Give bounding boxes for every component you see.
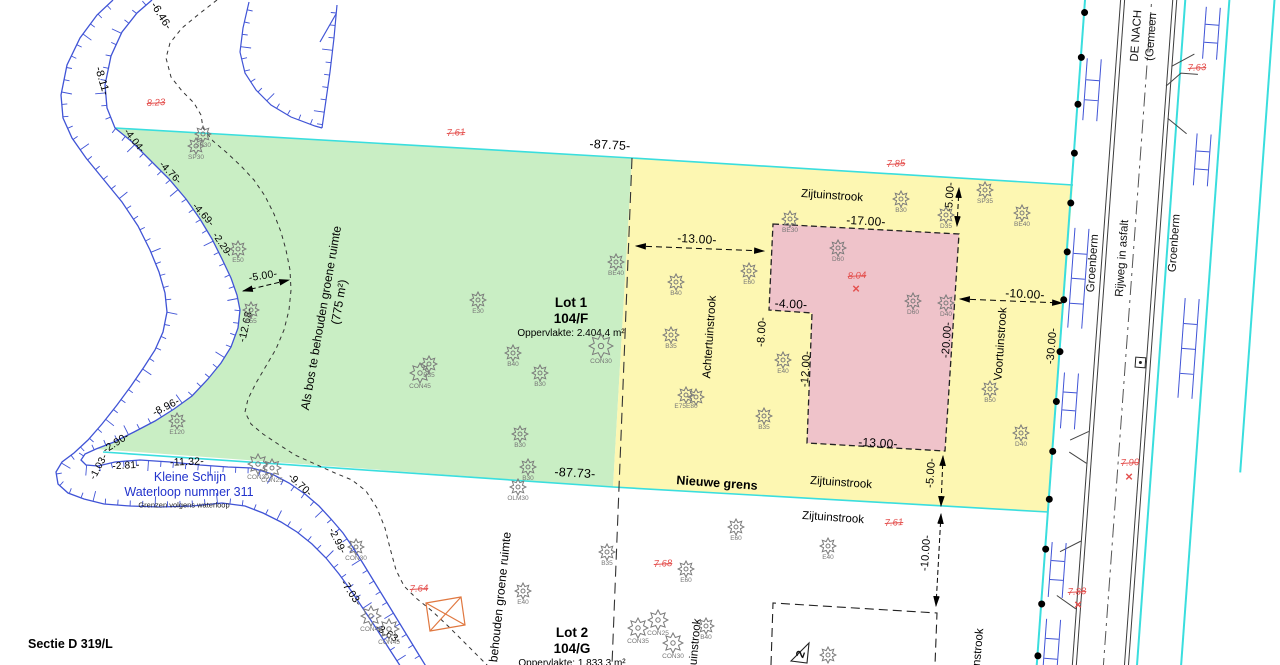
tree-label: E60 <box>743 279 755 286</box>
tree-label: BE40 <box>608 270 624 277</box>
tree-label: E60 <box>680 577 692 584</box>
survey-point-dot <box>1052 397 1059 404</box>
dimension-label: -20.00- <box>940 321 955 358</box>
survey-point-dot <box>1037 600 1044 607</box>
cadastral-survey-plan: 2 Kleine Schijn Waterloop nummer 311 Gre… <box>0 0 1280 665</box>
culvert-rung <box>1074 253 1087 255</box>
dimension-label: -13.00- <box>677 231 717 247</box>
ditch-branch-west <box>240 2 322 128</box>
dimension-label: -10.00- <box>1005 286 1045 302</box>
dimension-label: -4.00- <box>774 296 807 312</box>
tree-label: E40 <box>777 368 789 375</box>
tree-label: SP35 <box>977 198 993 205</box>
culvert-rung <box>1184 323 1197 325</box>
culvert-rung <box>1085 100 1098 102</box>
spot-height: 7.68 <box>653 558 672 570</box>
tree-label: B30 <box>534 381 546 388</box>
survey-point-dot <box>1041 545 1048 552</box>
waterway-name-line1: Kleine Schijn <box>154 470 226 484</box>
tree-symbol <box>687 388 705 411</box>
lot2-area: Oppervlakte: 1.833,3 m² <box>518 657 625 665</box>
tree-label: E30 <box>472 308 484 315</box>
culvert-rung <box>1195 168 1208 170</box>
street-name-label: DE NACH (Gemeen <box>1128 10 1162 64</box>
tree-label: E40 <box>822 554 834 561</box>
culvert-rung <box>1182 348 1195 350</box>
tree-label: CON35 <box>627 638 649 645</box>
spot-height: 7.61 <box>884 517 903 529</box>
spot-height: 7.61 <box>446 127 465 139</box>
dimension-label: -17.00- <box>846 213 886 229</box>
tree-label: D60 <box>832 256 844 263</box>
survey-point-dot <box>1067 199 1074 206</box>
culvert-rung <box>1062 410 1075 412</box>
tree-label: B40 <box>670 290 682 297</box>
survey-point-dot <box>1049 447 1056 454</box>
survey-point-dot <box>1080 8 1087 15</box>
tree-label: B30 <box>895 207 907 214</box>
tree-label: D40 <box>940 311 952 318</box>
lot1-parcel: 104/F <box>517 311 624 327</box>
lot2-name: Lot 2 <box>518 625 625 641</box>
spot-height: 7.64 <box>409 583 428 595</box>
culvert-rung <box>1046 638 1059 640</box>
tree-label: OLM30 <box>507 495 528 502</box>
tree-label: E50 <box>232 257 244 264</box>
dimension-label: -5.00- <box>924 458 938 489</box>
manhole-symbol <box>1135 357 1147 369</box>
road-detail-lines <box>969 0 1280 665</box>
waterway-name-line2: Waterloop nummer 311 <box>124 485 253 499</box>
spot-height: 8.23 <box>146 97 165 109</box>
culvert-rung <box>1070 303 1083 305</box>
spot-height: 7.85 <box>886 158 905 170</box>
tree-label: B50 <box>984 397 996 404</box>
tree-label: CON45 <box>378 639 400 646</box>
dimension-label: -87.73- <box>554 465 596 481</box>
crossed-structure-symbol <box>426 597 465 631</box>
dimension-label: -87.75- <box>589 137 631 153</box>
lot2-label-block: Lot 2 104/G Oppervlakte: 1.833,3 m² <box>518 625 625 665</box>
tree-label: BE30 <box>782 227 798 234</box>
spot-height: 7.63 <box>1187 62 1206 74</box>
tree-label: B40 <box>507 361 519 368</box>
culvert-rung <box>1050 579 1063 581</box>
culvert-symbol <box>1042 619 1061 665</box>
waterway-note: Grenzen volgens waterloop <box>138 501 229 510</box>
lot1-name: Lot 1 <box>517 295 624 311</box>
lot2-parcel: 104/G <box>518 641 625 657</box>
culvert-rung <box>1204 41 1217 43</box>
dimension-label: -11.32- <box>170 455 204 468</box>
tree-label: B35 <box>665 343 677 350</box>
tree-label: D35 <box>940 223 952 230</box>
spot-height-cross: × <box>852 284 860 294</box>
dimension-label: -13.00- <box>858 435 898 451</box>
tree-label: D40 <box>1015 441 1027 448</box>
culvert-rung <box>1044 657 1057 659</box>
dimension-label: -8.00- <box>755 317 769 348</box>
tree-label: CON25 <box>261 477 283 484</box>
tree-label: CON30 <box>345 555 367 562</box>
tree-label: CON45 <box>409 383 431 390</box>
culvert-rung <box>1086 79 1099 81</box>
tree-label: D60 <box>907 309 919 316</box>
tree-symbol <box>819 646 837 665</box>
spot-height: 7.90 <box>1120 457 1139 469</box>
dimension-label: -12.00- <box>799 350 814 387</box>
culvert-rung <box>1180 373 1193 375</box>
triangle-2-symbol: 2 <box>791 643 809 663</box>
spot-height-cross: × <box>1125 472 1133 482</box>
dimension-label: -2.81- <box>112 460 140 472</box>
tree-label: B35 <box>601 560 613 567</box>
survey-point-dot <box>1045 495 1052 502</box>
tree-label: E40 <box>517 599 529 606</box>
ditch-branch-east <box>322 5 337 128</box>
tree-label: B35 <box>758 424 770 431</box>
road-group: Groenberm Rijweg in asfalt Groenberm DE … <box>969 0 1280 665</box>
survey-point-dot <box>1060 295 1067 302</box>
tree-label: E120 <box>169 429 184 436</box>
tree-label: CON30 <box>590 358 612 365</box>
tree-label: B40 <box>700 634 712 641</box>
spot-height-cross: × <box>1074 600 1082 610</box>
tree-label: B30 <box>514 442 526 449</box>
sectie-label: Sectie D 319/L <box>28 637 113 651</box>
culvert-rung <box>1205 24 1218 26</box>
culvert-rung <box>1064 391 1077 393</box>
survey-point-dot <box>1077 53 1084 60</box>
survey-point-dot <box>1063 248 1070 255</box>
survey-point-dot <box>1070 149 1077 156</box>
tree-label: E55 <box>245 318 257 325</box>
tree-label: CON30 <box>662 653 684 660</box>
tree-label: E60 <box>730 535 742 542</box>
culvert-rung <box>1072 278 1085 280</box>
culvert-rung <box>1196 151 1209 153</box>
survey-point-dot <box>1034 652 1041 659</box>
culvert-rung <box>1051 560 1064 562</box>
dimension-label: -10.00- <box>919 534 934 571</box>
tree-label: SP30 <box>188 154 204 161</box>
survey-point-dot <box>1074 100 1081 107</box>
tree-label: BE40 <box>1014 221 1030 228</box>
